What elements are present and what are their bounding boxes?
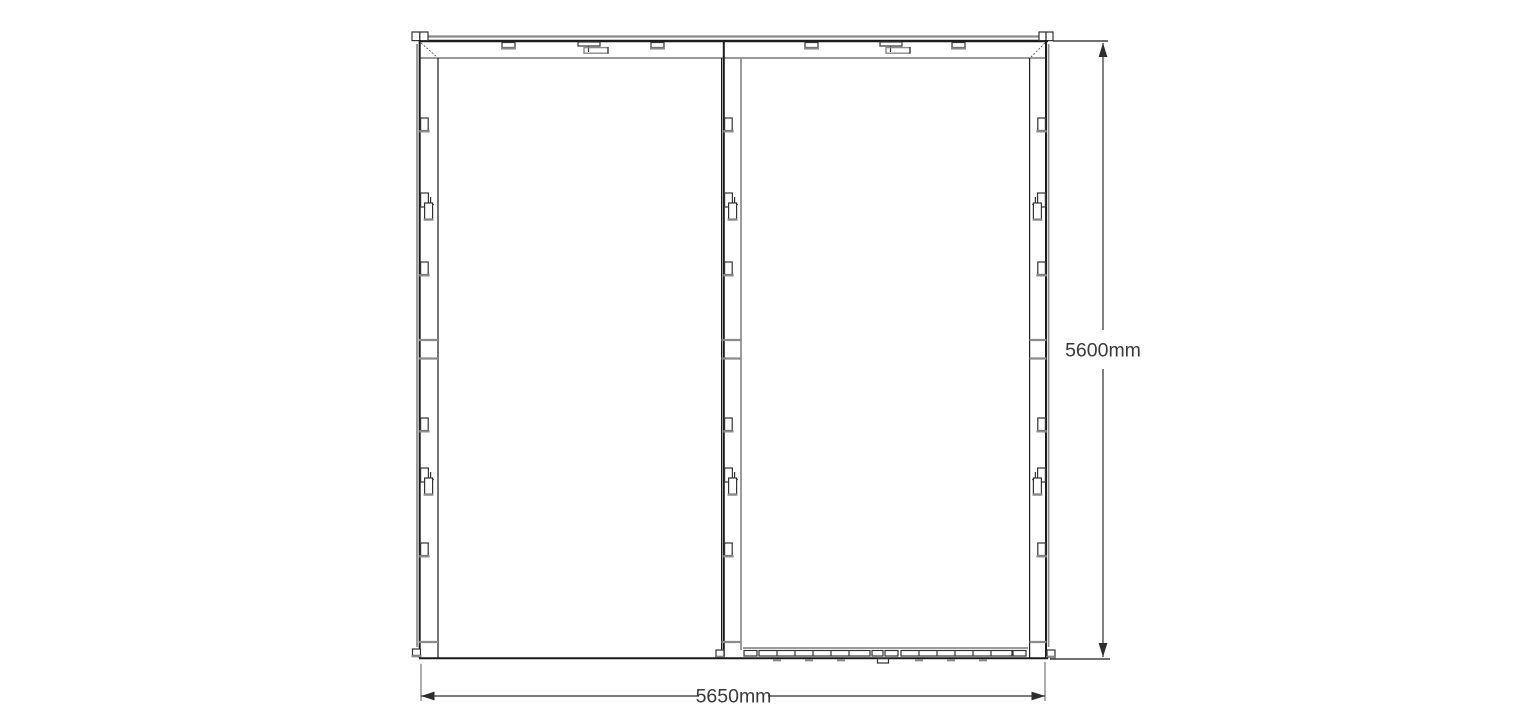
top-wall	[412, 32, 1053, 58]
drawing-canvas: 5650mm 5600mm	[0, 0, 1534, 724]
wall-clip	[419, 418, 429, 431]
middle-wall	[715, 41, 741, 658]
wall-clip	[1036, 418, 1046, 431]
structure-outline	[412, 32, 1057, 663]
wall-clip	[723, 418, 733, 431]
wall-clip	[419, 543, 429, 556]
wall-clip	[1036, 118, 1046, 131]
bottom-edge	[419, 648, 1048, 663]
wall-clip	[419, 262, 429, 275]
left-wall	[412, 40, 439, 658]
wall-clip	[723, 118, 733, 131]
foot-clip	[412, 649, 422, 656]
foot-clip	[1046, 650, 1056, 657]
arrow-down-icon	[1099, 643, 1108, 657]
wall-hinge	[421, 468, 434, 495]
track-segment-right	[901, 651, 1012, 657]
wall-hinge	[725, 193, 738, 220]
height-dimension-label: 5600mm	[1065, 340, 1141, 362]
top-tab	[650, 43, 665, 49]
top-latch	[880, 42, 910, 54]
technical-drawing: 5650mm 5600mm	[0, 0, 1534, 724]
corner-brace-right	[1031, 43, 1045, 57]
wall-hinge	[1032, 193, 1045, 220]
wall-clip	[1036, 543, 1046, 556]
top-tab	[951, 43, 966, 49]
height-dimension: 5600mm	[1050, 41, 1141, 659]
width-dimension: 5650mm	[421, 662, 1045, 708]
wall-hinge	[421, 193, 434, 220]
wall-clip	[723, 262, 733, 275]
top-latch	[578, 42, 608, 54]
wall-clip	[1036, 262, 1046, 275]
wall-hinge	[725, 468, 738, 495]
sill-track	[743, 648, 1028, 663]
wall-clip	[419, 118, 429, 131]
top-tab	[804, 43, 819, 49]
arrow-right-icon	[1032, 692, 1046, 701]
width-dimension-label: 5650mm	[696, 686, 772, 708]
foot-clip	[715, 650, 725, 657]
arrow-left-icon	[421, 692, 435, 701]
corner-brace-left	[421, 43, 437, 57]
track-segment-left	[759, 651, 870, 657]
arrow-up-icon	[1099, 43, 1108, 57]
top-tab	[501, 43, 516, 49]
wall-hinge	[1032, 468, 1045, 495]
right-wall	[1030, 40, 1057, 658]
wall-clip	[723, 543, 733, 556]
